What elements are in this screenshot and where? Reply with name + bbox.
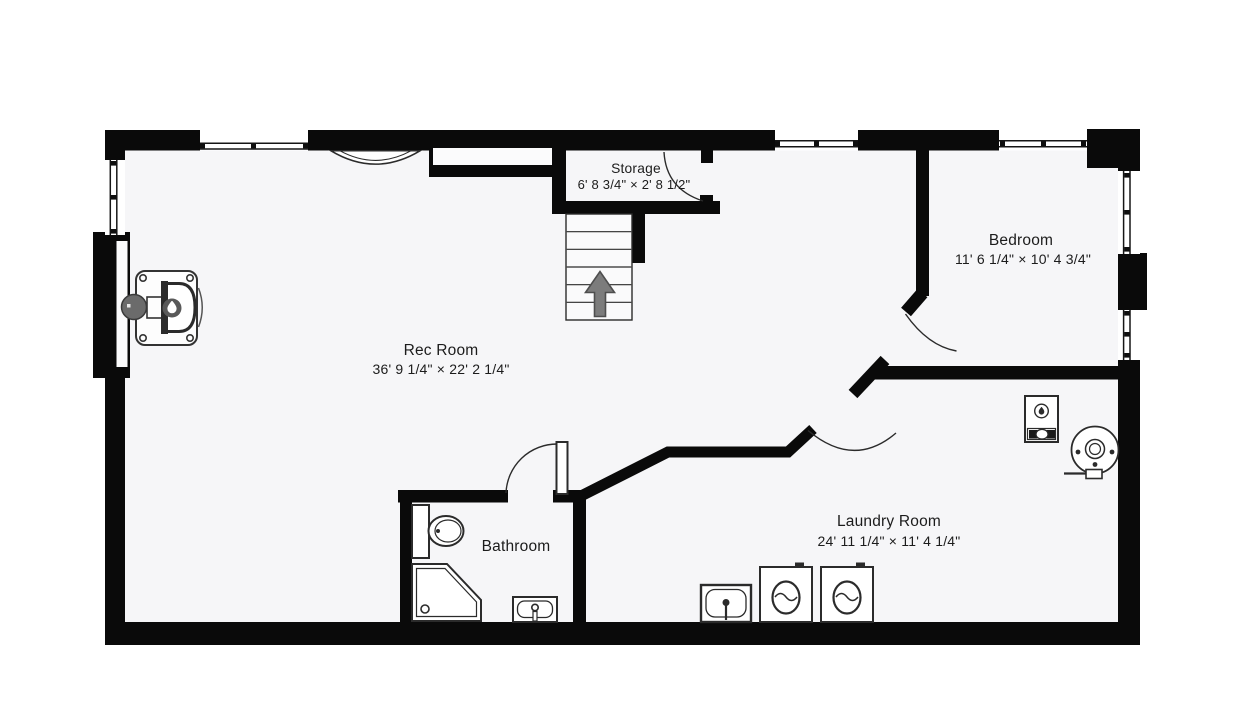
storage-door-jamb-bottom	[700, 195, 713, 214]
furnace	[1025, 396, 1058, 442]
room-name-storage: Storage	[611, 161, 661, 176]
faucet-icon	[532, 604, 538, 610]
room-dimensions-storage: 6' 8 3/4" × 2' 8 1/2"	[578, 177, 691, 192]
room-dimensions-rec-room: 36' 9 1/4" × 22' 2 1/4"	[372, 361, 509, 377]
window-left-wall	[105, 160, 125, 235]
room-name-laundry-room: Laundry Room	[837, 513, 941, 530]
floor-plan-canvas: Rec Room 36' 9 1/4" × 22' 2 1/4" Storage…	[0, 0, 1240, 720]
room-name-bathroom: Bathroom	[482, 538, 551, 555]
bedroom-bottom-wall	[874, 366, 1140, 380]
stove-flue	[122, 295, 147, 320]
staircase-up	[566, 214, 632, 320]
window-bedroom-lower	[1118, 310, 1140, 360]
room-dimensions-bedroom: 11' 6 1/4" × 10' 4 3/4"	[955, 251, 1091, 267]
bathroom-sink	[513, 597, 557, 622]
corner-block-top-right	[1087, 129, 1140, 168]
dryer	[821, 563, 873, 623]
window-pier-right	[1118, 253, 1147, 310]
bathroom-door-leaf	[557, 442, 568, 494]
room-name-bedroom: Bedroom	[989, 232, 1053, 249]
window-top-center	[775, 130, 858, 151]
stair-side-wall	[632, 201, 645, 263]
floor-plan-svg: Rec Room 36' 9 1/4" × 22' 2 1/4" Storage…	[0, 0, 1240, 720]
room-dimensions-laundry-room: 24' 11 1/4" × 11' 4 1/4"	[818, 533, 961, 549]
bathroom-right-wall	[573, 490, 586, 622]
room-label-bathroom: Bathroom	[482, 538, 551, 555]
window-top-right	[999, 130, 1087, 151]
bedroom-left-wall	[916, 143, 929, 296]
room-name-rec-room: Rec Room	[404, 342, 479, 359]
window-bedroom-upper	[1118, 171, 1140, 254]
wall-recess-band	[429, 148, 562, 177]
window-top-left	[200, 130, 308, 151]
washer	[760, 563, 812, 623]
bathroom-top-wall	[398, 490, 508, 503]
storage-door-jamb-top	[701, 143, 713, 163]
bathroom-left-wall	[400, 490, 412, 622]
laundry-sink	[701, 585, 751, 622]
